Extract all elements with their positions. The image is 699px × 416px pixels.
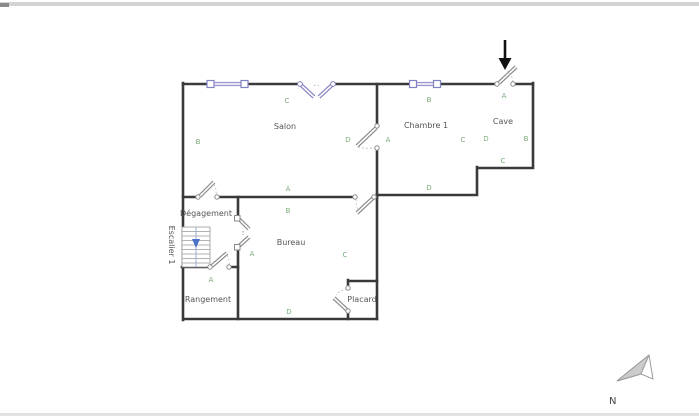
- wall-letter-chambre-left: A: [386, 136, 391, 144]
- label-salon: Salon: [274, 122, 296, 131]
- wall-letter-bureau-bottom: D: [286, 308, 291, 316]
- wall-letter-bureau-left: A: [250, 250, 255, 258]
- wall-letter-chambre-right: C: [461, 136, 466, 144]
- wall-letter-rangement-top: A: [209, 276, 214, 284]
- wall-letter-chambre-bottom: D: [426, 184, 431, 192]
- door-cave-entrance: [495, 67, 516, 86]
- label-escalier1: Escalier 1: [167, 226, 176, 265]
- french-door-salon: [298, 82, 336, 97]
- label-chambre1: Chambre 1: [404, 121, 448, 130]
- wall-letter-salon-right: D: [345, 136, 350, 144]
- window-chambre: [410, 81, 441, 88]
- wall-letter-cave-bottom: C: [501, 157, 506, 165]
- wall-letter-cave-top: A: [502, 92, 507, 100]
- wall-letter-cave-left: D: [483, 135, 488, 143]
- door-salon-degagement: [196, 182, 219, 199]
- label-placard: Placard: [347, 295, 376, 304]
- wall-letter-salon-left: B: [196, 138, 201, 146]
- floor-plan-svg: N Salon Chambre 1 Cave Dégagement Bureau…: [0, 0, 699, 416]
- door-salon-chambre: [357, 124, 379, 150]
- floor-plan-page: N Salon Chambre 1 Cave Dégagement Bureau…: [0, 0, 699, 416]
- walls: [182, 83, 533, 320]
- wall-letter-bureau-right: C: [343, 251, 348, 259]
- north-arrow-icon: [617, 355, 653, 381]
- label-degagement: Dégagement: [180, 208, 232, 218]
- window-salon: [207, 81, 248, 88]
- entrance-arrow-icon: [499, 40, 512, 70]
- wall-letter-chambre-top: B: [427, 96, 432, 104]
- wall-letter-cave-right: B: [524, 135, 529, 143]
- door-salon-bureau: [353, 195, 376, 213]
- staircase: [182, 227, 210, 267]
- label-cave: Cave: [493, 117, 513, 126]
- wall-letter-salon-top: C: [285, 97, 290, 105]
- north-label: N: [609, 396, 616, 407]
- door-degagement-rangement: [208, 253, 231, 269]
- wall-letter-bureau-top: B: [286, 207, 291, 215]
- label-bureau: Bureau: [277, 238, 306, 247]
- wall-letter-salon-bottom: A: [286, 185, 291, 193]
- label-rangement: Rangement: [185, 295, 231, 304]
- door-degagement-bureau: [235, 216, 250, 251]
